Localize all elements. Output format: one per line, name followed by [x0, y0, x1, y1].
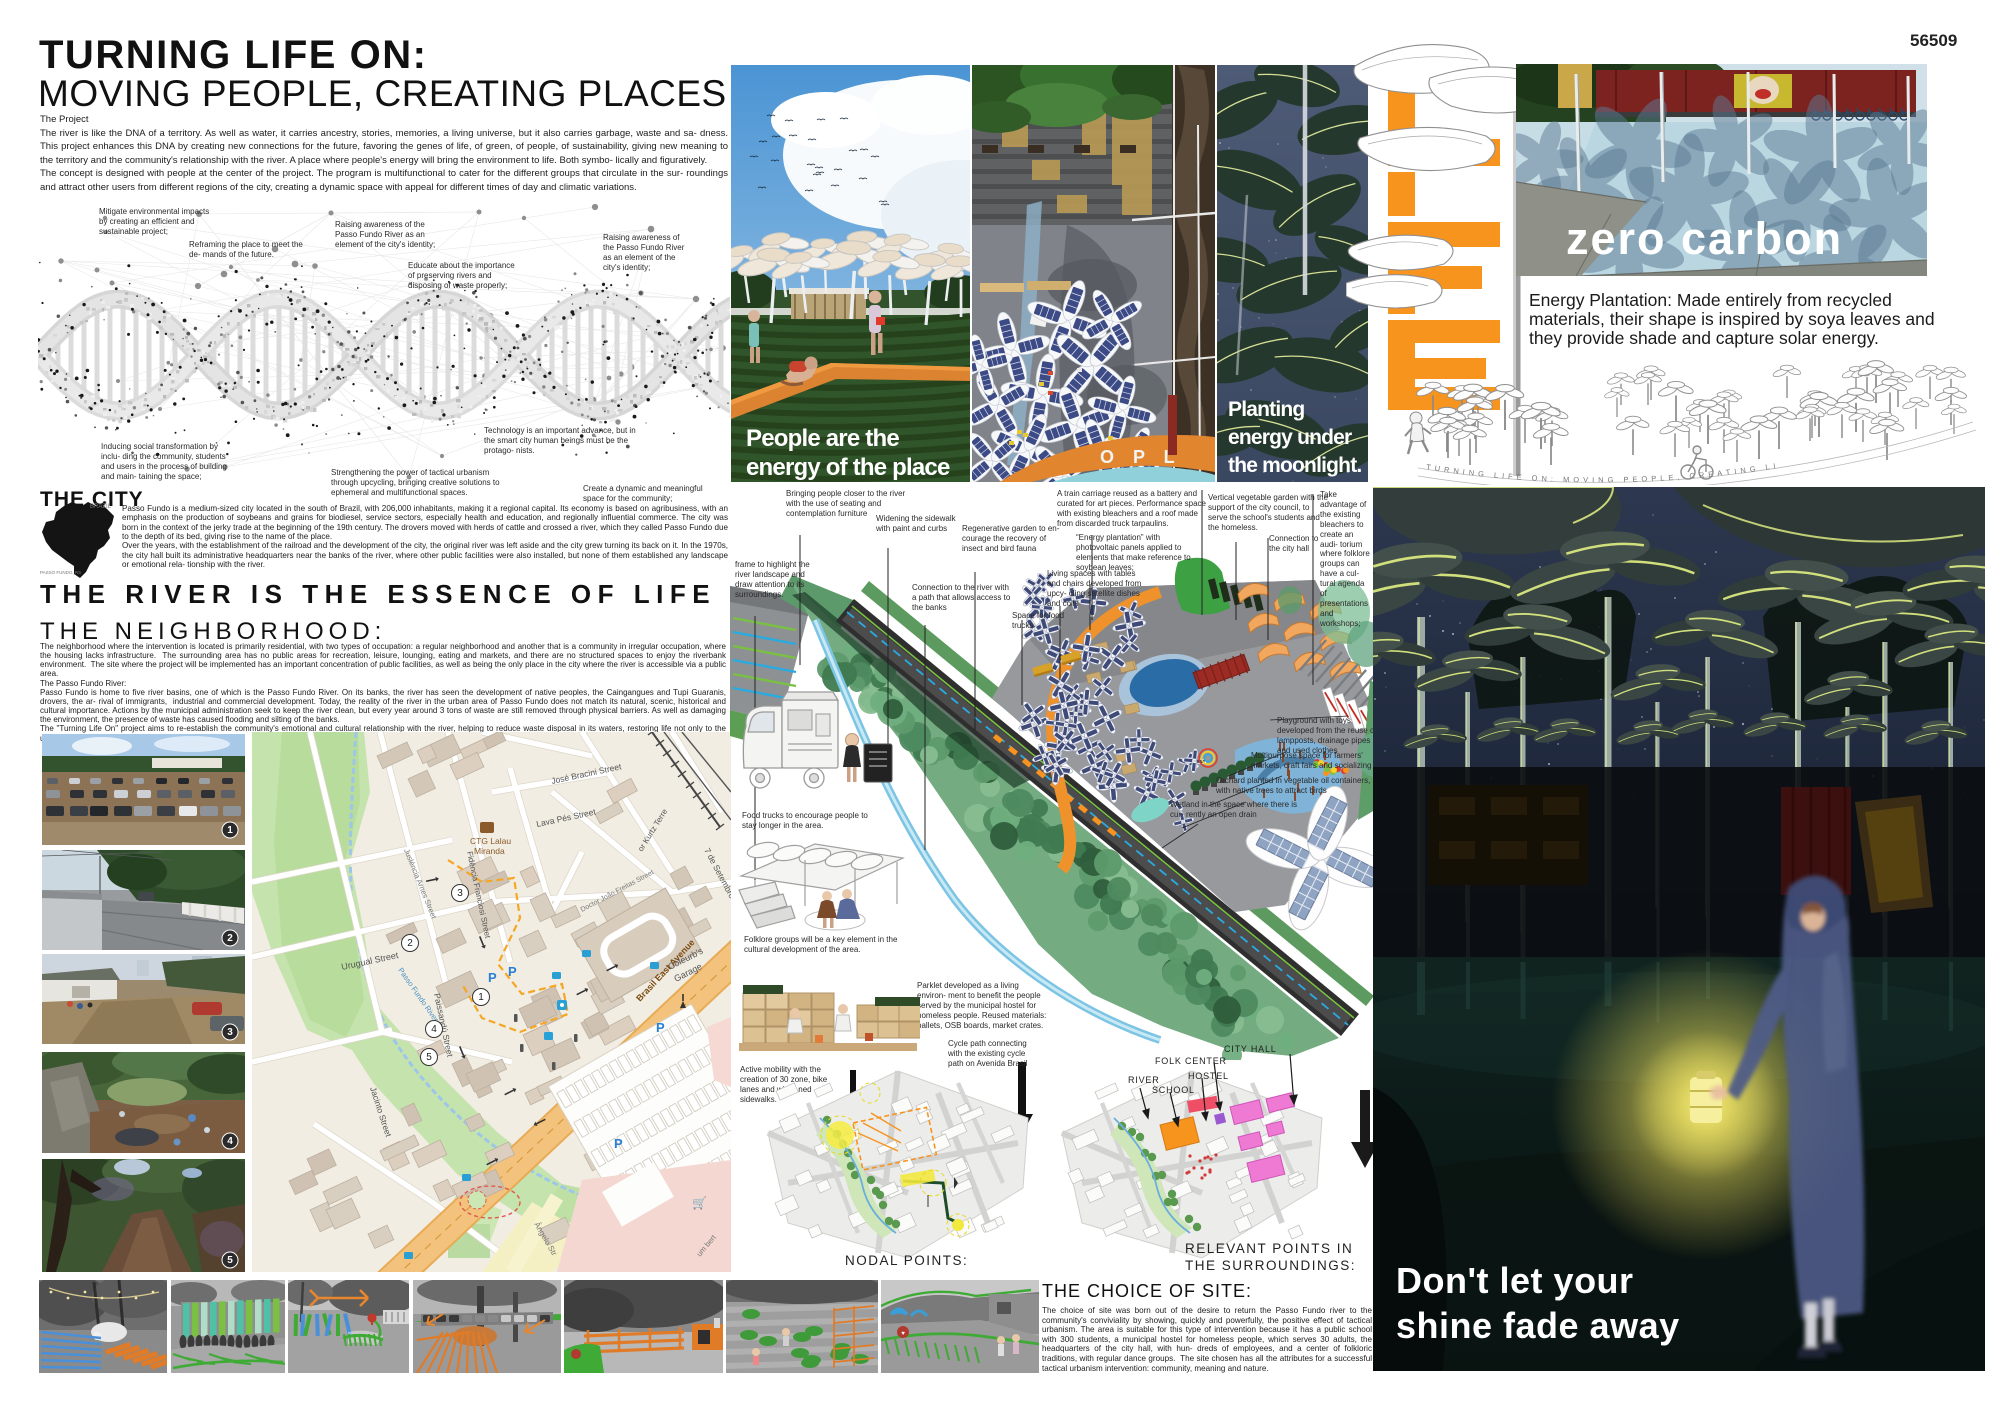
svg-text:3: 3: [457, 888, 463, 899]
svg-text:PASSO FUNDO, RS: PASSO FUNDO, RS: [40, 570, 81, 575]
svg-text:5: 5: [426, 1052, 432, 1063]
svg-text:TURNING LIFE ON: MOVING: TURNING LIFE ON: MOVING PEOPLE, CREATING…: [1426, 461, 1780, 485]
svg-text:P: P: [488, 970, 497, 985]
svg-text:5: 5: [227, 1255, 233, 1266]
svg-text:1: 1: [227, 825, 233, 836]
svg-text:2: 2: [407, 938, 413, 949]
svg-text:P: P: [508, 964, 517, 979]
svg-text:2: 2: [227, 933, 233, 944]
svg-text:shine fade away: shine fade away: [1396, 1305, 1680, 1346]
svg-text:CTG Lalau: CTG Lalau: [470, 836, 511, 846]
svg-text:4: 4: [227, 1136, 233, 1147]
svg-text:3: 3: [227, 1027, 233, 1038]
svg-text:4: 4: [431, 1024, 437, 1035]
svg-text:1: 1: [478, 992, 484, 1003]
svg-text:BRAZIL: BRAZIL: [90, 504, 112, 510]
svg-text:zero carbon: zero carbon: [1566, 213, 1843, 264]
svg-text:Don't let your: Don't let your: [1396, 1260, 1634, 1301]
svg-text:♥: ♥: [901, 1331, 905, 1337]
svg-text:Miranda: Miranda: [474, 846, 505, 856]
svg-text:P: P: [614, 1136, 623, 1151]
svg-text:🛒: 🛒: [692, 1196, 707, 1210]
svg-text:P: P: [656, 1020, 665, 1035]
